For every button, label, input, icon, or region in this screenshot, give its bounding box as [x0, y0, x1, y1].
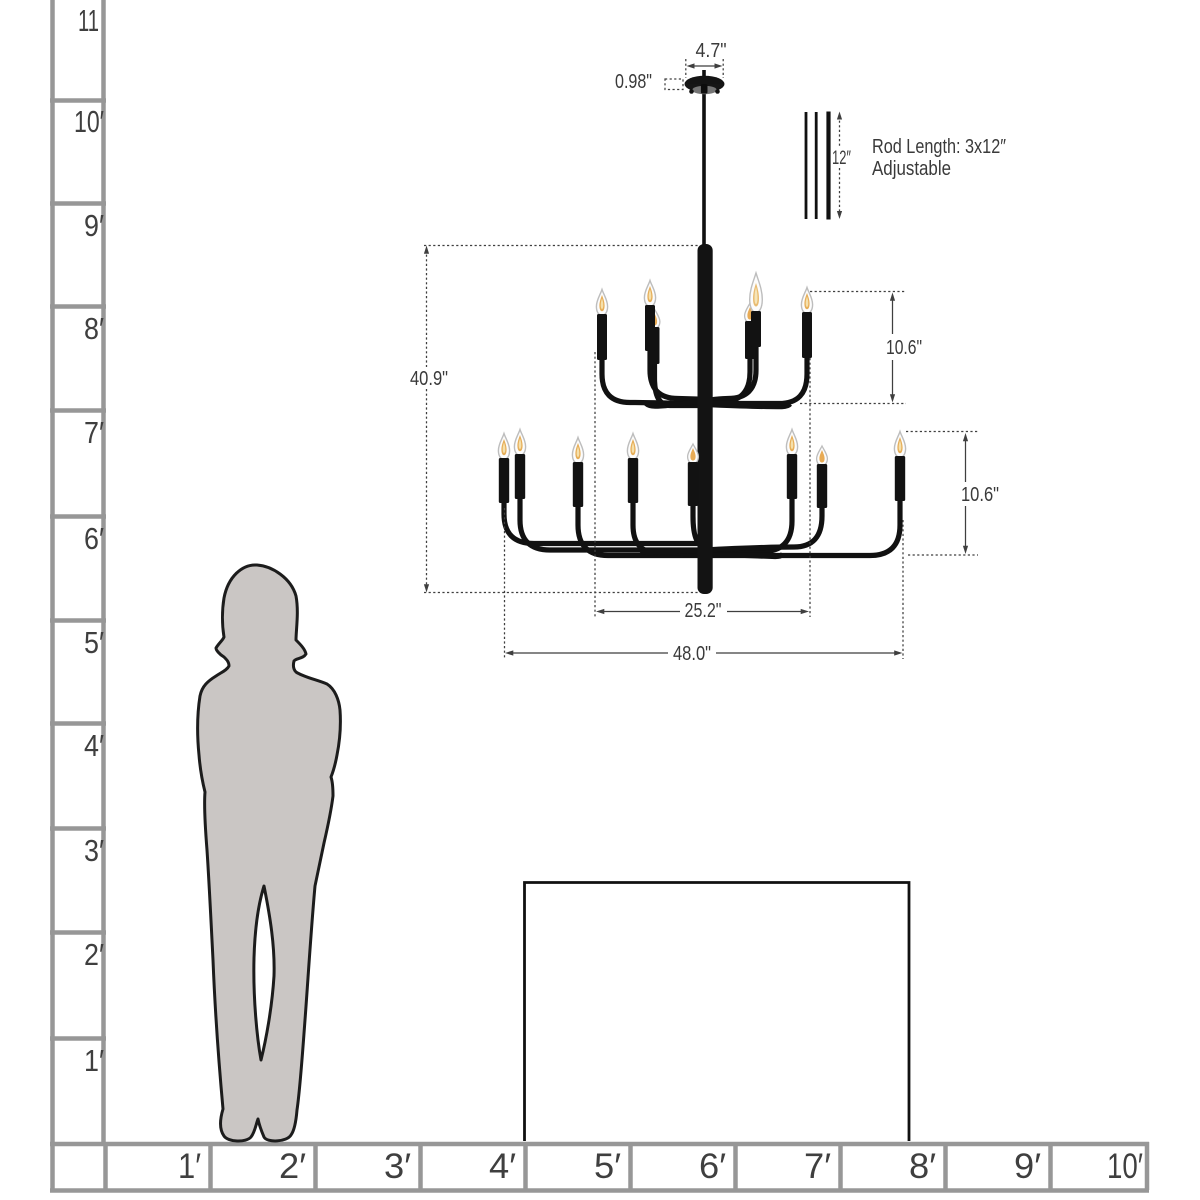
svg-text:10′: 10′	[74, 104, 104, 139]
svg-text:4′: 4′	[489, 1147, 516, 1186]
svg-text:5′: 5′	[594, 1147, 621, 1186]
svg-text:0.98": 0.98"	[615, 71, 652, 93]
svg-text:2′: 2′	[279, 1147, 306, 1186]
svg-text:10.6": 10.6"	[886, 337, 922, 359]
svg-text:7′: 7′	[804, 1147, 831, 1186]
svg-text:11: 11	[78, 3, 99, 38]
svg-text:8′: 8′	[84, 311, 104, 346]
svg-text:40.9": 40.9"	[410, 368, 448, 390]
svg-text:9′: 9′	[84, 208, 104, 243]
svg-text:1′: 1′	[178, 1147, 201, 1186]
svg-text:6′: 6′	[84, 521, 104, 556]
svg-text:Adjustable: Adjustable	[872, 158, 951, 180]
svg-text:3′: 3′	[384, 1147, 411, 1186]
svg-text:6′: 6′	[699, 1147, 726, 1186]
svg-text:2′: 2′	[84, 937, 104, 972]
svg-text:9′: 9′	[1014, 1147, 1041, 1186]
svg-text:4′: 4′	[84, 728, 104, 763]
svg-text:10′: 10′	[1107, 1147, 1143, 1186]
svg-text:7′: 7′	[84, 415, 104, 450]
svg-text:8′: 8′	[909, 1147, 936, 1186]
svg-text:4.7": 4.7"	[696, 40, 727, 62]
svg-text:10.6": 10.6"	[961, 484, 999, 506]
svg-text:3′: 3′	[84, 833, 104, 868]
svg-text:5′: 5′	[84, 625, 104, 660]
svg-text:48.0": 48.0"	[673, 643, 711, 665]
svg-text:25.2": 25.2"	[685, 600, 722, 622]
svg-text:1′: 1′	[84, 1043, 104, 1078]
svg-text:Rod Length: 3x12″: Rod Length: 3x12″	[872, 136, 1006, 158]
svg-text:12″: 12″	[832, 148, 851, 169]
